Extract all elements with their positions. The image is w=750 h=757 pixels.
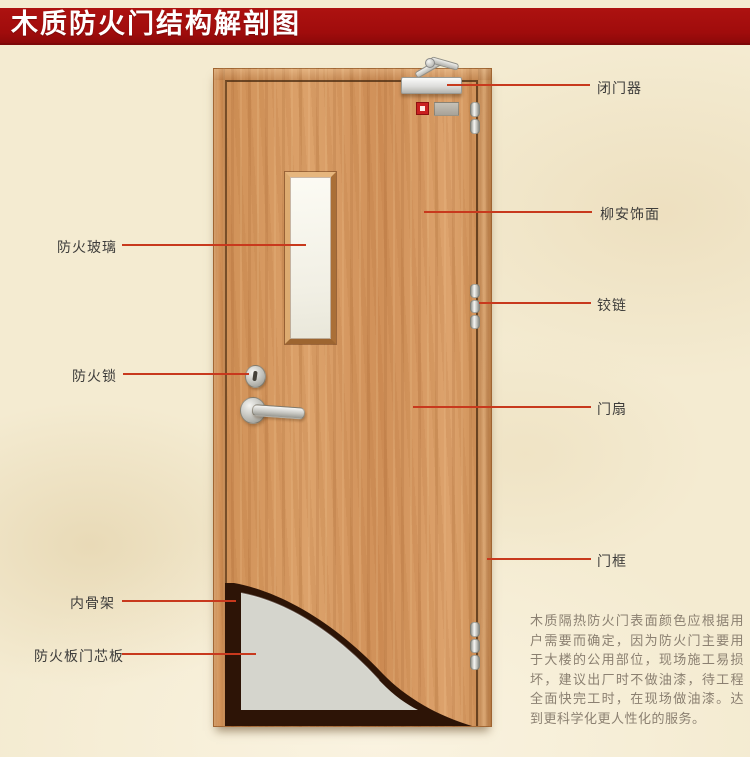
annotation-line-fire-glass xyxy=(122,244,306,246)
fire-glass-window xyxy=(285,172,336,344)
door-closer-icon xyxy=(399,56,463,98)
nameplate xyxy=(434,102,459,116)
annotation-line-inner-skeleton xyxy=(122,600,236,602)
door-illustration xyxy=(213,68,492,727)
annotation-line-door-frame xyxy=(487,558,591,560)
label-fire-lock: 防火锁 xyxy=(72,366,117,386)
label-door-closer: 闭门器 xyxy=(597,78,642,98)
title-banner: 木质防火门结构解剖图 xyxy=(0,8,750,45)
label-fire-glass: 防火玻璃 xyxy=(57,237,117,257)
door-frame-left xyxy=(214,69,225,726)
core-board-layer xyxy=(241,593,418,710)
annotation-line-door-closer xyxy=(447,84,590,86)
label-inner-skeleton: 内骨架 xyxy=(70,593,115,613)
annotation-line-door-leaf xyxy=(413,406,591,408)
fire-rating-sign xyxy=(416,102,429,115)
label-fire-board-core: 防火板门芯板 xyxy=(34,646,124,666)
label-lauan-veneer: 柳安饰面 xyxy=(600,204,660,224)
annotation-line-fire-board-core xyxy=(122,653,256,655)
page-title: 木质防火门结构解剖图 xyxy=(0,8,750,42)
description-note: 木质隔热防火门表面颜色应根据用户需要而确定，因为防火门主要用于大楼的公用部位，现… xyxy=(530,612,744,730)
label-door-leaf: 门扇 xyxy=(597,399,627,419)
annotation-line-fire-lock xyxy=(123,373,249,375)
hinge-icon xyxy=(470,101,480,135)
label-hinge: 铰链 xyxy=(597,295,627,315)
annotation-line-hinge xyxy=(479,302,591,304)
hinge-icon xyxy=(470,283,480,330)
cutaway-section xyxy=(225,583,479,726)
annotation-line-lauan-veneer xyxy=(424,211,592,213)
lock-cylinder-icon xyxy=(245,365,266,388)
label-door-frame: 门框 xyxy=(597,551,627,571)
closer-arm-joint xyxy=(425,58,435,68)
hinge-icon xyxy=(470,621,480,671)
